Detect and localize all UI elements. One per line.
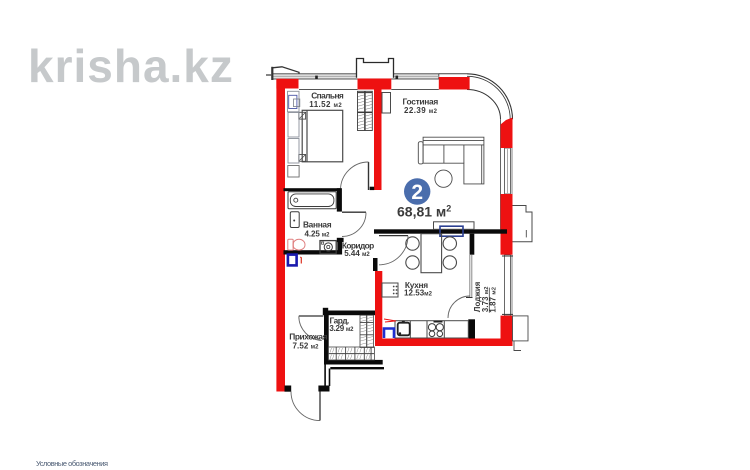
svg-text:68,81 м2: 68,81 м2 <box>397 204 451 220</box>
svg-text:Условные обозначения: Условные обозначения <box>36 459 108 468</box>
svg-text:Ванная: Ванная <box>303 220 332 230</box>
svg-text:2: 2 <box>411 181 423 204</box>
svg-text:krisha.kz: krisha.kz <box>28 40 234 92</box>
svg-text:Спальня: Спальня <box>311 90 344 100</box>
svg-text:Прихожая: Прихожая <box>289 332 327 342</box>
svg-text:Гостиная: Гостиная <box>403 96 439 106</box>
